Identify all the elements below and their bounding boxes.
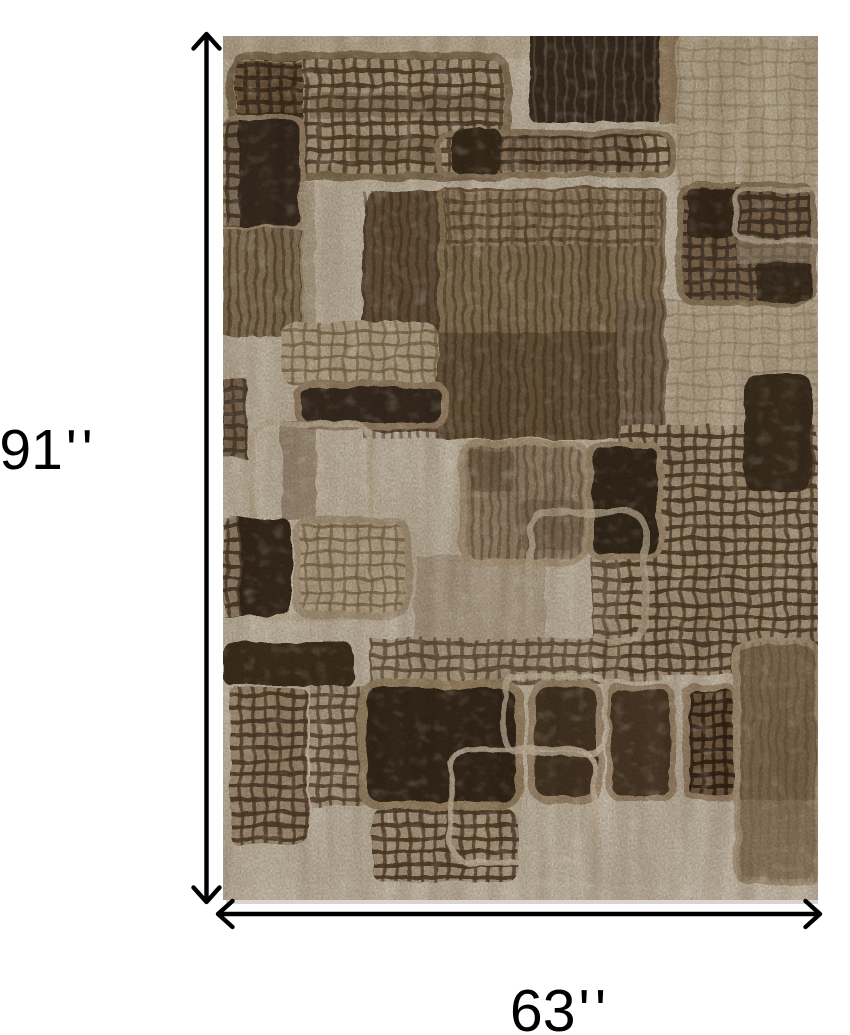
svg-text:91'': 91'' <box>0 418 93 482</box>
svg-text:63'': 63'' <box>510 978 606 1035</box>
